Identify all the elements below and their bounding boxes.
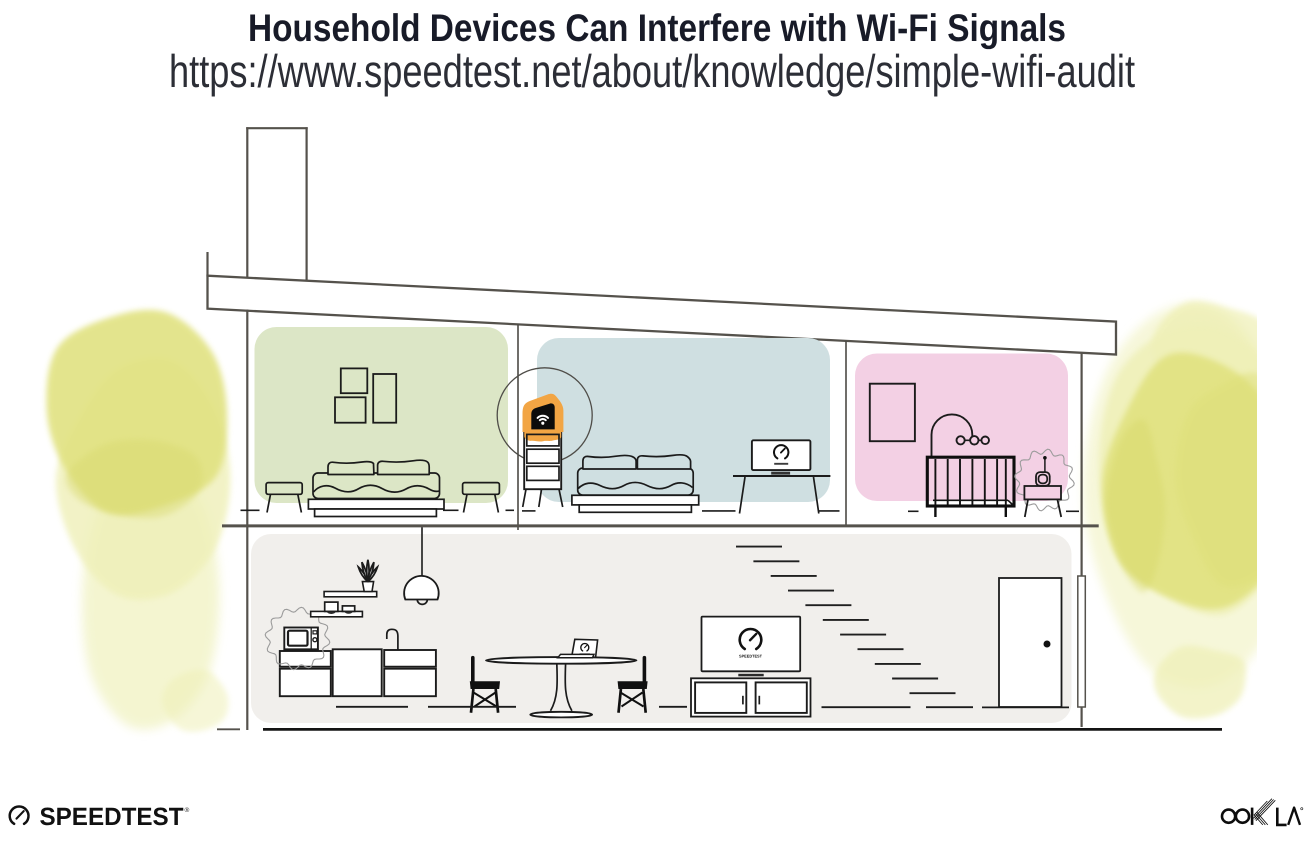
svg-text:®: ® [185, 807, 190, 814]
svg-text:Household Devices Can Interfer: Household Devices Can Interfere with Wi-… [248, 7, 1066, 50]
svg-text:SPEEDTEST: SPEEDTEST [40, 803, 184, 831]
svg-text:SPEEDTEST: SPEEDTEST [739, 654, 763, 659]
svg-text:https://www.speedtest.net/abou: https://www.speedtest.net/about/knowledg… [169, 45, 1135, 97]
